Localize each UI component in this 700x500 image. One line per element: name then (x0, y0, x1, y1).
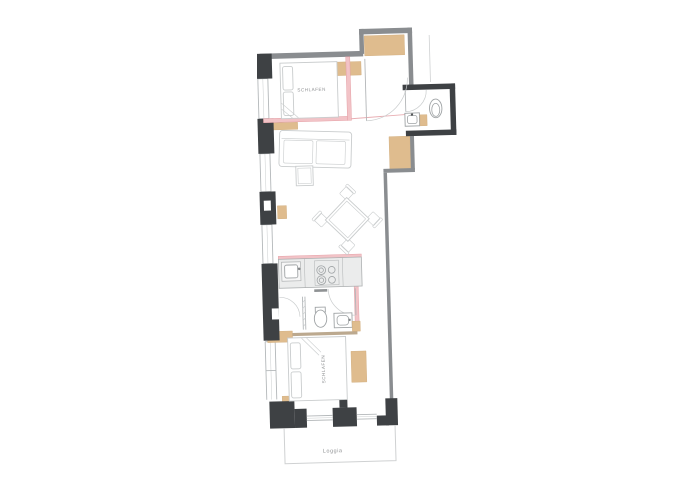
bath-door-swing (328, 288, 356, 316)
pier-niche-1 (264, 201, 271, 211)
window-south-2 (357, 414, 377, 419)
bedroom-bottom-wardrobe (351, 351, 367, 382)
wall-pier-left-2 (257, 118, 274, 153)
wc-door-swing (405, 90, 427, 112)
window-left-2 (260, 154, 271, 192)
wall-pier-south-mid (333, 407, 358, 427)
pillow (282, 66, 293, 90)
entry-wardrobe (364, 35, 405, 56)
wall-east (383, 173, 393, 399)
label-bedroom-bottom: SCHLAFEN (321, 355, 327, 384)
pillow (291, 372, 302, 398)
kitchen-sink-basin (285, 265, 298, 278)
dining-table (325, 197, 369, 241)
loggia-outline (284, 425, 396, 464)
wc-faucet (411, 114, 413, 116)
wall-pier-sw-ext (295, 409, 308, 428)
window-left-3 (262, 225, 273, 264)
wc-door-leaf (405, 91, 406, 112)
living-radiator (277, 206, 286, 219)
wall-pier-se-foot (377, 415, 389, 425)
label-bedroom-top: SCHLAFEN (297, 87, 326, 93)
window-left-1 (258, 79, 269, 119)
wc (404, 99, 442, 126)
floor-plan-canvas: SCHLAFEN (0, 0, 700, 500)
exterior-edge-line (429, 35, 430, 82)
wall-pier-left-1 (257, 53, 272, 78)
coffee-table (296, 166, 314, 186)
floor-plan: SCHLAFEN (257, 23, 469, 473)
window-left-4 (265, 341, 277, 399)
pier-niche-2 (272, 308, 279, 319)
wall-entry-right (407, 28, 413, 86)
wc-toilet (429, 99, 442, 118)
wall-wc-right (450, 83, 457, 135)
shower-door-swing (279, 297, 300, 318)
bedroom-bottom-top-wall (292, 331, 357, 336)
hall-wardrobe (389, 136, 411, 170)
dining-set (311, 183, 384, 256)
wall-pier-left-4 (261, 263, 279, 340)
bath-cabinet (352, 321, 360, 331)
pillow (290, 343, 301, 369)
wall-east-step (383, 168, 415, 173)
wall-wc-bottom (406, 129, 457, 136)
wall-entry-top (359, 28, 412, 35)
kitchen-counter (278, 257, 362, 293)
wall-pier-south-mid-stub (339, 399, 347, 407)
plan-rotated-group: SCHLAFEN (257, 26, 466, 464)
label-loggia: Loggia (323, 448, 343, 455)
wc-cabinet (420, 115, 427, 126)
window-south-1 (307, 415, 333, 420)
wall-pier-sw-corner (269, 401, 295, 429)
loggia: Loggia (284, 425, 396, 464)
kitchen-handle (314, 289, 327, 292)
entry-door-leaf (365, 59, 367, 121)
sofa (279, 130, 352, 168)
bath-toilet (314, 310, 327, 328)
